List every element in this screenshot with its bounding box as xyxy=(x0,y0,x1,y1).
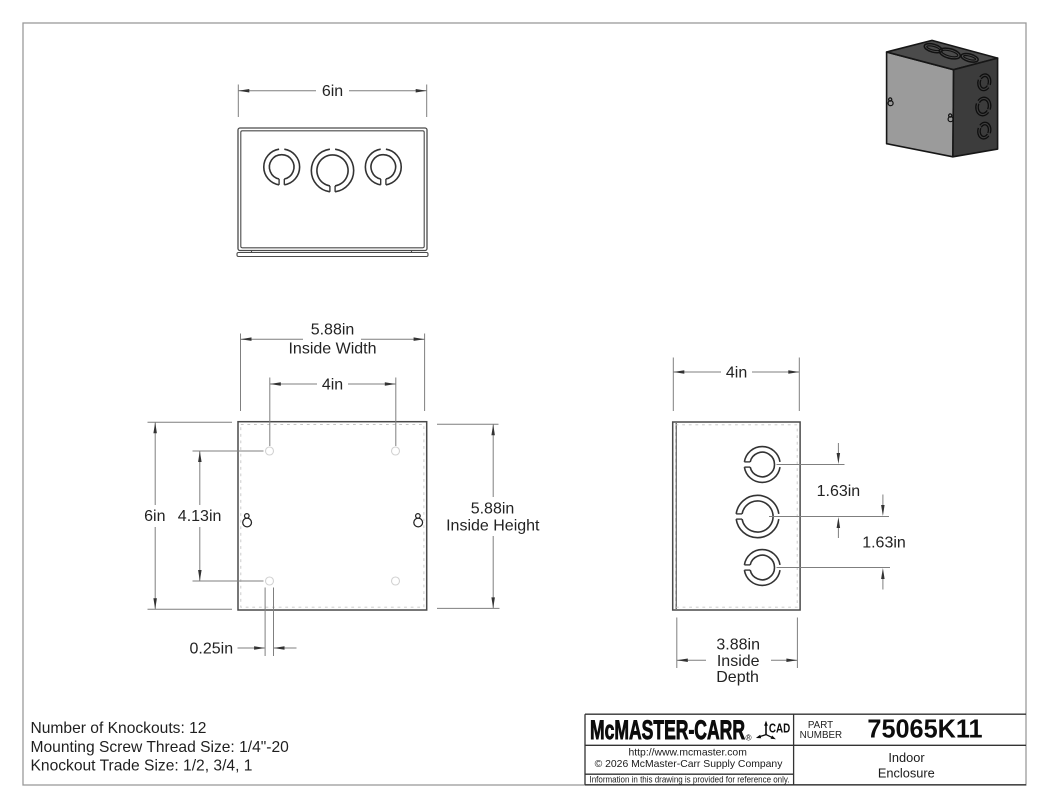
svg-text:Indoor: Indoor xyxy=(888,750,925,765)
svg-text:Mounting Screw Thread Size: 1/: Mounting Screw Thread Size: 1/4"-20 xyxy=(31,739,290,756)
svg-text:Inside: Inside xyxy=(717,653,760,670)
svg-text:Knockout Trade Size: 1/2, 3/4,: Knockout Trade Size: 1/2, 3/4, 1 xyxy=(31,758,253,775)
svg-text:© 2026 McMaster-Carr Supply Co: © 2026 McMaster-Carr Supply Company xyxy=(595,759,784,770)
svg-text:6in: 6in xyxy=(144,508,165,525)
svg-text:CAD: CAD xyxy=(769,721,790,735)
svg-text:®: ® xyxy=(745,734,751,743)
svg-text:Enclosure: Enclosure xyxy=(878,765,935,780)
svg-text:Depth: Depth xyxy=(716,669,759,686)
svg-text:Inside Width: Inside Width xyxy=(288,341,376,358)
svg-text:0.25in: 0.25in xyxy=(190,640,234,657)
svg-text:3.88in: 3.88in xyxy=(716,636,760,653)
svg-text:Inside Height: Inside Height xyxy=(446,517,540,534)
svg-text:Information in this drawing is: Information in this drawing is provided … xyxy=(590,775,790,785)
svg-text:4in: 4in xyxy=(726,364,747,381)
svg-text:5.88in: 5.88in xyxy=(471,500,515,517)
svg-text:4in: 4in xyxy=(322,376,343,393)
svg-text:McMASTER-CARR: McMASTER-CARR xyxy=(590,715,745,745)
svg-text:6in: 6in xyxy=(322,83,343,100)
svg-text:1.63in: 1.63in xyxy=(862,535,906,552)
svg-text:5.88in: 5.88in xyxy=(311,321,355,338)
svg-text:http://www.mcmaster.com: http://www.mcmaster.com xyxy=(629,748,747,759)
svg-text:1.63in: 1.63in xyxy=(817,483,861,500)
svg-text:Number of Knockouts: 12: Number of Knockouts: 12 xyxy=(31,720,207,737)
svg-text:4.13in: 4.13in xyxy=(178,508,222,525)
svg-text:75065K11: 75065K11 xyxy=(867,715,982,743)
svg-text:NUMBER: NUMBER xyxy=(800,730,842,741)
